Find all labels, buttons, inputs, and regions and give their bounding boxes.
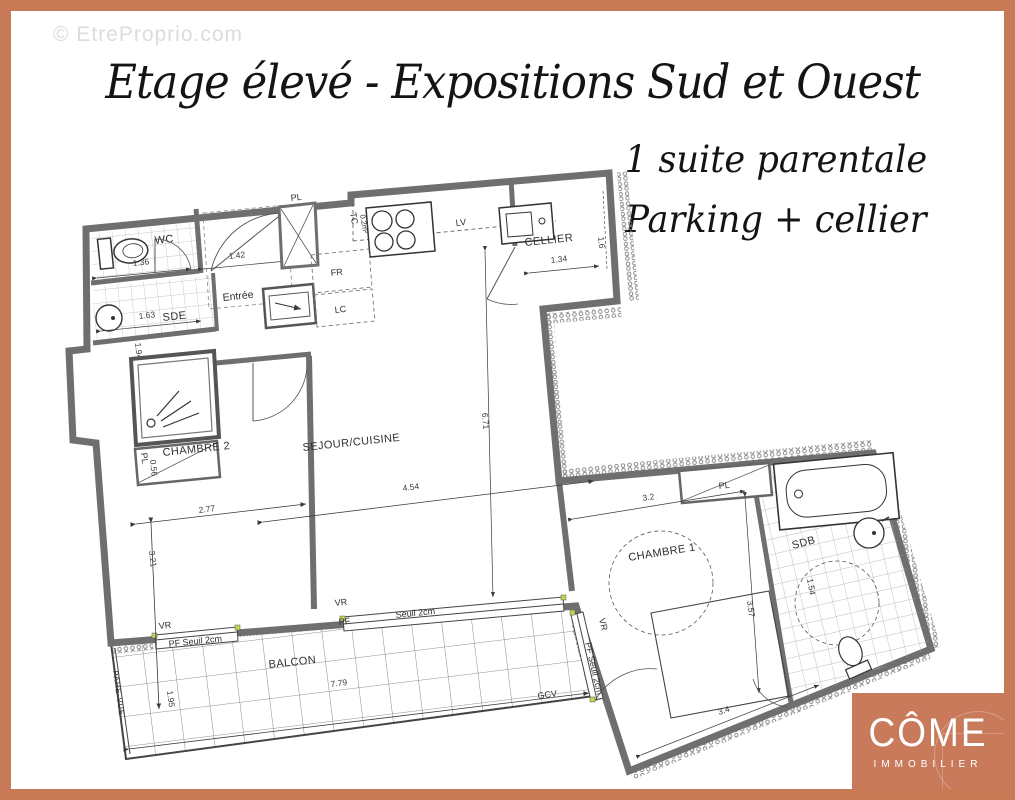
shelf-closet [263,284,316,328]
balcony-depth-dim: 1.95 [165,690,177,708]
pf-label-2: PF [338,616,351,627]
lc-label: LC [334,304,347,315]
stove-icon [366,202,435,257]
wc-width-dim: 1.36 [132,256,150,268]
vr-label-2: VR [334,597,348,608]
chambre2-height-dim: 3.21 [147,550,159,568]
sejour-height-dim: 6.71 [480,412,491,429]
agency-name: CÔME [869,710,988,755]
lv-label: LV [455,217,466,228]
entree-closet-label: PL [290,192,302,203]
sde-width-dim: 1.63 [138,309,156,321]
cellier-width-dim: 1.34 [550,253,568,265]
floor-plan-drawing: BALCON 7.79 1.95 GCV PARE-VUE [51,151,951,800]
page-title: Etage élevé - Expositions Sud et Ouest [105,55,896,110]
chambre2-closet-dim: 0.56 [148,459,160,477]
vr-label-1: VR [158,620,172,631]
chambre1-closet: PL [679,463,772,503]
chambre1-width-dim: 3.2 [642,491,656,503]
sde-label: SDE [162,310,187,324]
shower-icon [131,351,219,445]
agency-logo: CÔME IMMOBILIER [852,693,1004,789]
sde-sink-icon [96,305,122,331]
chambre2-width-dim: 2.77 [198,503,216,515]
floor-plan-page: © EtreProprio.com Etage élevé - Expositi… [0,0,1015,800]
chambre1-closet-label: PL [718,480,730,491]
bathtub-icon [774,453,900,530]
tc-label: TC [348,212,360,226]
fr-label: FR [330,267,343,278]
entree-closet: PL [279,192,318,268]
sejour-width-dim: 4.54 [402,481,420,493]
agency-tagline: IMMOBILIER [874,759,983,770]
balcony-width-dim: 7.79 [330,677,348,689]
entree-width-dim: 1.42 [228,249,246,261]
watermark: © EtreProprio.com [53,23,243,47]
